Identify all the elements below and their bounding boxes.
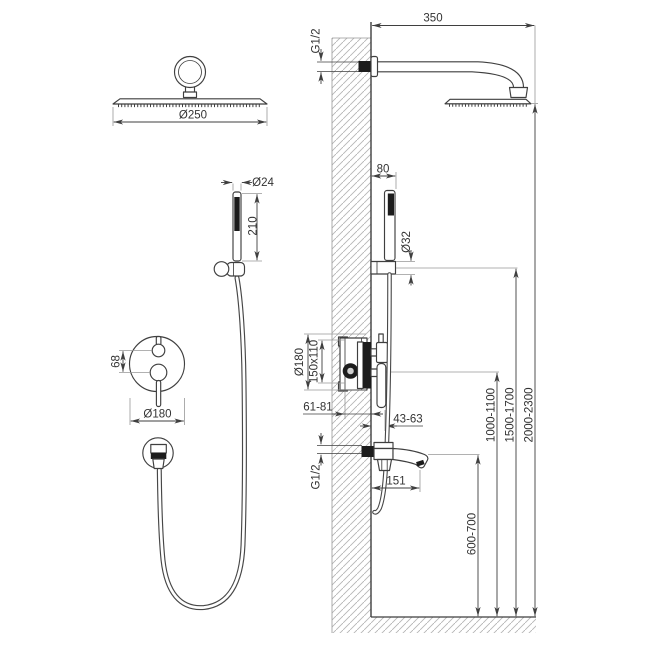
arm-wall-connection: [359, 61, 372, 72]
diverter-stub-side: [379, 334, 383, 343]
valve-plate-diameter-label: Ø180: [294, 348, 306, 376]
head-connector: [510, 88, 528, 98]
shower-hose: [159, 278, 244, 608]
shower-installation-diagram: Ø250 Ø24 210 68: [0, 0, 650, 650]
spout-height-label: 600-700: [467, 513, 479, 555]
outlet-connector-nut: [153, 459, 164, 469]
spout-flange: [374, 443, 393, 449]
mixer-lever-side: [377, 364, 386, 408]
trim-plate-edge: [363, 342, 371, 389]
front-view-mixer: 68 Ø180: [111, 337, 185, 426]
shower-head-disc: [113, 99, 267, 104]
hand-shower-holder-knob: [214, 262, 229, 277]
spout-body: [393, 449, 428, 468]
valve-height-label: 1000-1100: [486, 388, 498, 442]
wall-section: [332, 22, 536, 633]
valve-depth-label: 61-81: [303, 402, 332, 414]
side-view-valve: Ø180 150x110 61-81 43-63: [294, 334, 499, 431]
holder-side: [371, 262, 396, 275]
shower-arm-outer: [378, 62, 524, 88]
valve-box-label: 150x110: [309, 340, 321, 383]
arm-flange: [371, 57, 378, 77]
spout-thread-label: G1/2: [311, 465, 323, 490]
hand-shower-diameter-label: Ø24: [252, 177, 274, 189]
hand-offset-label: 80: [377, 164, 390, 176]
holder-height-label: 1500-1700: [505, 388, 517, 443]
spray-face: [234, 197, 239, 231]
side-view-hand-shower: 80 Ø32: [371, 164, 518, 286]
outlet-connector-band: [151, 453, 167, 459]
arm-length-label: 350: [423, 13, 442, 25]
lever-stem: [371, 369, 377, 377]
diverter-knob: [152, 344, 165, 357]
front-view-overhead-shower: Ø250: [113, 57, 267, 127]
hand-shower-length-label: 210: [248, 216, 260, 235]
mixer-gap-label: 68: [111, 355, 123, 368]
ceiling-mount-outer: [175, 57, 206, 88]
shower-arm-inner: [378, 72, 514, 88]
front-view-hand-shower: Ø24 210: [214, 177, 274, 276]
overhead-diameter-label: Ø250: [179, 110, 207, 122]
mixer-diameter-label: Ø180: [143, 409, 171, 421]
outlet-connector-top: [151, 445, 167, 454]
mixer-knob: [150, 364, 167, 381]
diverter-knob-side: [377, 343, 388, 363]
mixer-lever: [156, 381, 160, 407]
technical-drawing-page: Ø250 Ø24 210 68: [0, 0, 650, 650]
spout-length-label: 151: [386, 476, 405, 488]
spout-nut: [378, 460, 392, 471]
mounting-height-dimensions: 600-700 1000-1100 1500-1700 2000-2300: [467, 26, 536, 617]
spray-face-side: [388, 194, 394, 216]
ceiling-mount-inner: [179, 61, 202, 84]
hand-shower-holder-bracket: [227, 263, 245, 277]
wall-hatch: [332, 38, 371, 633]
spout-wall-connection: [362, 446, 375, 457]
trim-depth-label: 43-63: [393, 414, 422, 426]
trim-plate-back: [358, 342, 364, 389]
head-height-label: 2000-2300: [524, 388, 536, 443]
shower-head-disc-side: [445, 99, 531, 104]
arm-collar: [184, 92, 197, 98]
valve-inlet-core: [347, 368, 354, 375]
front-view-hose-and-outlet: [143, 278, 245, 608]
floor-hatch: [371, 617, 536, 633]
holder-diameter-label: Ø32: [401, 231, 413, 253]
spout-mount: [374, 449, 393, 460]
